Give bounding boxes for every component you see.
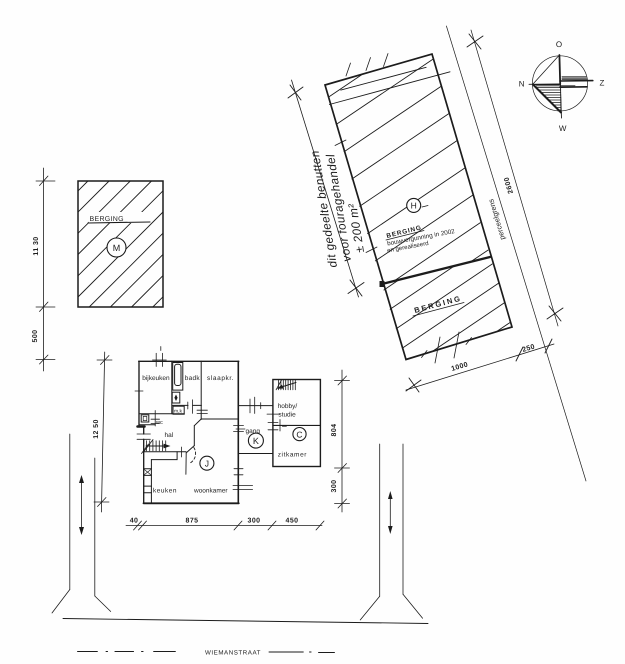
svg-text:WIEMANSTRAAT: WIEMANSTRAAT <box>205 650 261 657</box>
svg-text:zitkamer: zitkamer <box>278 452 308 459</box>
svg-text:W: W <box>559 124 567 133</box>
svg-text:12 50: 12 50 <box>93 419 100 439</box>
svg-text:slaapkr.: slaapkr. <box>207 375 234 382</box>
svg-text:450: 450 <box>286 518 299 525</box>
svg-text:804: 804 <box>331 424 338 437</box>
svg-text:M: M <box>113 243 121 253</box>
svg-text:300: 300 <box>248 518 261 525</box>
svg-text:studie: studie <box>278 412 296 419</box>
svg-text:badk: badk <box>185 375 201 382</box>
svg-text:bijkeuken: bijkeuken <box>142 375 170 382</box>
svg-text:300: 300 <box>331 480 338 493</box>
svg-text:500: 500 <box>32 330 39 343</box>
svg-text:hal: hal <box>165 432 174 439</box>
svg-text:40: 40 <box>130 518 139 525</box>
svg-text:Z: Z <box>600 79 605 88</box>
svg-text:11 30: 11 30 <box>33 236 40 255</box>
svg-text:m,k: m,k <box>174 409 183 415</box>
svg-text:keuken: keuken <box>153 488 177 495</box>
svg-text:875: 875 <box>186 518 199 525</box>
svg-text:wc: wc <box>155 420 163 426</box>
svg-text:K: K <box>253 436 259 446</box>
svg-text:H: H <box>411 201 417 211</box>
svg-text:hobby/: hobby/ <box>278 403 298 410</box>
svg-text:woonkamer: woonkamer <box>193 488 228 495</box>
svg-text:BERGING: BERGING <box>90 216 124 223</box>
svg-text:N: N <box>519 80 525 89</box>
svg-text:J: J <box>205 458 209 468</box>
svg-text:O: O <box>556 40 562 49</box>
svg-text:C: C <box>296 429 302 439</box>
